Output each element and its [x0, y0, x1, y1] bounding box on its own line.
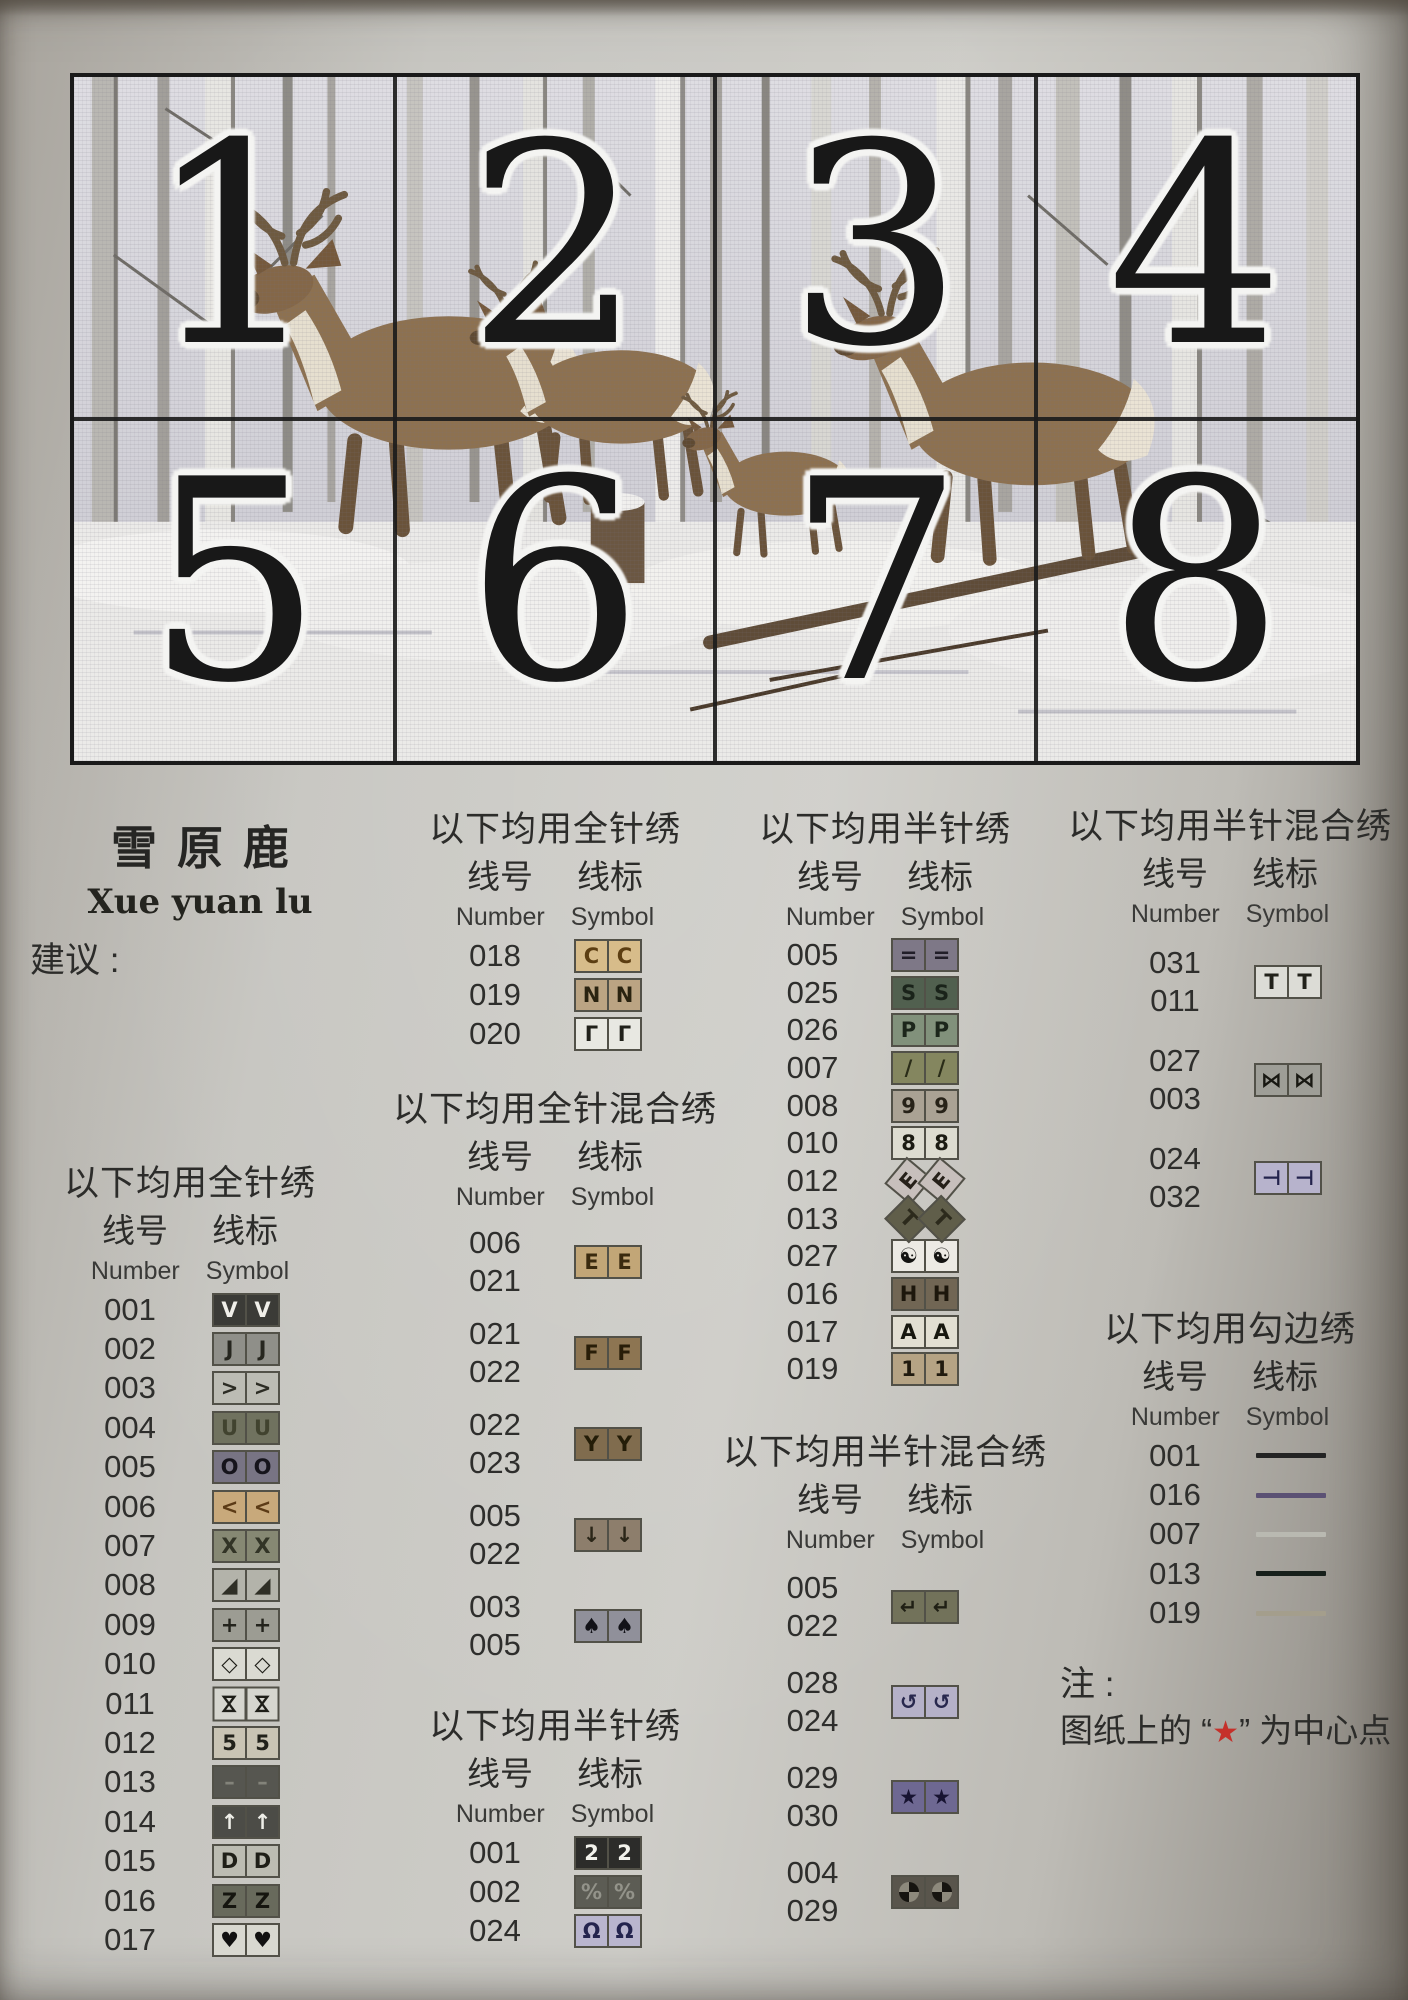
thread-number: 016 [70, 1883, 190, 1919]
column-headers-cn: 线号 线标 [40, 1206, 340, 1256]
note-block: 注 : 图纸上的 “★” 为中心点 [1060, 1662, 1400, 1756]
legend-pair-row: 031011 TT [1060, 933, 1400, 1031]
thread-number-label-cn: 线号 [467, 1132, 533, 1182]
symbol-swatch: FF [574, 1336, 642, 1370]
thread-number: 016 [1100, 1477, 1250, 1513]
thread-symbol-label-cn: 线标 [212, 1206, 278, 1256]
section-full-mix-stitch: 以下均用全针混合绣 线号 线标 Number Symbol 006021 EE … [390, 1088, 720, 1671]
symbol-cell: V [245, 1293, 280, 1327]
thread-number: 008 [70, 1567, 190, 1603]
column-headers-cn: 线号 线标 [720, 1475, 1050, 1525]
legend-row: 011 ⋈⋈ [40, 1684, 340, 1723]
symbol-cell: 2 [607, 1836, 642, 1870]
symbol-swatch: PP [891, 1013, 959, 1047]
thread-number: 022 [430, 1535, 560, 1573]
pattern-title-chinese: 雪原鹿 [60, 820, 340, 876]
thread-number-pair: 005022 [430, 1497, 560, 1573]
thread-symbol-label-en: Symbol [1246, 1402, 1329, 1432]
symbol-swatch: AA [891, 1315, 959, 1349]
thread-number: 012 [70, 1725, 190, 1761]
symbol-swatch: >> [212, 1371, 280, 1405]
column-headers-cn: 线号 线标 [390, 1749, 720, 1799]
thread-number-label-en: Number [456, 1799, 545, 1829]
symbol-cell: ☯ [891, 1239, 926, 1273]
thread-number: 022 [430, 1406, 560, 1444]
legend-row: 027 ☯☯ [720, 1238, 1050, 1276]
note-text-before: 图纸上的 “ [1060, 1712, 1212, 1749]
thread-number: 005 [750, 937, 875, 973]
symbol-cell: ◢ [245, 1568, 280, 1602]
symbol-swatch: 55 [212, 1726, 280, 1760]
symbol-swatch: ⋈⋈ [1254, 1063, 1322, 1097]
symbol-cell: D [212, 1844, 247, 1878]
legend-row: 009 ++ [40, 1605, 340, 1644]
symbol-cell: / [924, 1051, 959, 1085]
section-half-stitch-col3: 以下均用半针绣 线号 线标 Number Symbol 005 == 025 S… [720, 808, 1050, 1388]
symbol-cell: H [891, 1277, 926, 1311]
column-headers-cn: 线号 线标 [1060, 849, 1400, 899]
section-full-stitch-col2: 以下均用全针绣 线号 线标 Number Symbol 018 CC 019 N… [390, 808, 720, 1054]
thread-number: 021 [430, 1262, 560, 1300]
column-headers-en: Number Symbol [390, 1799, 720, 1829]
symbol-cell: ◢ [212, 1568, 247, 1602]
thread-number-label-en: Number [91, 1256, 180, 1286]
legend-row: 001 [1060, 1436, 1400, 1475]
thread-number: 011 [1100, 982, 1250, 1020]
legend-pair-row: 022023 YY [390, 1398, 720, 1489]
symbol-cell: ★ [891, 1780, 926, 1814]
legend-row: 005 == [720, 936, 1050, 974]
symbol-swatch: HH [891, 1277, 959, 1311]
thread-number: 007 [1100, 1516, 1250, 1552]
thread-number: 019 [430, 977, 560, 1013]
section-title: 以下均用半针混合绣 [720, 1431, 1050, 1475]
thread-number: 032 [1100, 1178, 1250, 1216]
thread-number-label-cn: 线号 [1142, 849, 1208, 899]
symbol-cell: C [574, 939, 609, 973]
legend-pair-row: 005022 ↵↵ [720, 1559, 1050, 1654]
symbol-cell: 8 [891, 1126, 926, 1160]
thread-number-label-cn: 线号 [467, 852, 533, 902]
symbol-swatch: ΩΩ [574, 1914, 642, 1948]
thread-number: 005 [70, 1449, 190, 1485]
symbol-cell: ↓ [574, 1518, 609, 1552]
section-backstitch: 以下均用勾边绣 线号 线标 Number Symbol 001 016 [1060, 1308, 1400, 1633]
symbol-cell: ⋈ [246, 1686, 280, 1721]
thread-number-label-cn: 线号 [797, 852, 863, 902]
symbol-cell: ↺ [924, 1685, 959, 1719]
legend-pair-row: 028024 ↺↺ [720, 1654, 1050, 1749]
symbol-swatch: YY [574, 1427, 642, 1461]
legend-row: 008 99 [720, 1087, 1050, 1125]
thread-number-label-cn: 线号 [797, 1475, 863, 1525]
note-text-after: ” 为中心点 [1239, 1712, 1391, 1749]
symbol-swatch: // [891, 1051, 959, 1085]
legend-pair-row: 024032 ⊣⊣ [1060, 1129, 1400, 1227]
column-headers-en: Number Symbol [720, 902, 1050, 932]
thread-number: 002 [70, 1331, 190, 1367]
symbol-swatch: OO [212, 1450, 280, 1484]
symbol-cell: 9 [924, 1089, 959, 1123]
outline-line-swatch [1256, 1571, 1326, 1576]
legend-row: 024 ΩΩ [390, 1912, 720, 1951]
symbol-cell: O [212, 1450, 247, 1484]
symbol-swatch: SS [891, 976, 959, 1010]
thread-number: 025 [750, 975, 875, 1011]
symbol-cell: ♥ [245, 1923, 280, 1957]
symbol-swatch: TT [1254, 965, 1322, 999]
thread-number: 017 [70, 1922, 190, 1958]
section-half-stitch-col2: 以下均用半针绣 线号 线标 Number Symbol 001 22 002 %… [390, 1705, 720, 1951]
symbol-swatch: CC [574, 939, 642, 973]
symbol-cell: Z [245, 1884, 280, 1918]
thread-number: 013 [750, 1201, 875, 1237]
column-headers-en: Number Symbol [40, 1256, 340, 1286]
symbol-cell: A [891, 1315, 926, 1349]
outline-line-swatch [1256, 1453, 1326, 1458]
symbol-cell: ↑ [245, 1805, 280, 1839]
symbol-swatch: TT [891, 1202, 959, 1236]
thread-number: 015 [70, 1843, 190, 1879]
thread-number: 001 [1100, 1438, 1250, 1474]
symbol-swatch: ↓↓ [574, 1518, 642, 1552]
section-half-mix-col4: 以下均用半针混合绣 线号 线标 Number Symbol 031011 TT … [1060, 805, 1400, 1227]
thread-number: 008 [750, 1088, 875, 1124]
thread-number: 017 [750, 1314, 875, 1350]
thread-number-pair: 029030 [750, 1759, 875, 1835]
thread-number: 007 [70, 1528, 190, 1564]
symbol-swatch: ♠♠ [574, 1609, 642, 1643]
thread-number-pair: 021022 [430, 1315, 560, 1391]
section-title: 以下均用全针混合绣 [390, 1088, 720, 1132]
thread-number-label-en: Number [456, 902, 545, 932]
column-headers-cn: 线号 线标 [390, 852, 720, 902]
symbol-cell: O [245, 1450, 280, 1484]
legend-row: 002 JJ [40, 1329, 340, 1368]
thread-number: 019 [750, 1351, 875, 1387]
symbol-cell: ↺ [891, 1685, 926, 1719]
symbol-cell: T [1287, 965, 1322, 999]
thread-number: 027 [1100, 1042, 1250, 1080]
symbol-swatch: ◢◢ [212, 1568, 280, 1602]
thread-number: 028 [750, 1664, 875, 1702]
symbol-cell: ⊣ [1254, 1161, 1289, 1195]
center-point-star-icon: ★ [1212, 1716, 1239, 1749]
legend-rows: 001 22 002 %% 024 ΩΩ [390, 1833, 720, 1951]
symbol-swatch: ΓΓ [574, 1017, 642, 1051]
thread-number: 014 [70, 1804, 190, 1840]
symbol-cell: < [245, 1490, 280, 1524]
symbol-cell: ⋈ [1254, 1063, 1289, 1097]
legend-row: 007 // [720, 1049, 1050, 1087]
outline-line-swatch [1256, 1611, 1326, 1616]
section-title: 以下均用全针绣 [390, 808, 720, 852]
legend-row: 012 55 [40, 1723, 340, 1762]
symbol-cell: ♠ [607, 1609, 642, 1643]
thread-number: 023 [430, 1444, 560, 1482]
thread-number-pair: 024032 [1100, 1140, 1250, 1216]
symbol-cell: Z [212, 1884, 247, 1918]
symbol-cell: = [924, 938, 959, 972]
legend-row: 013 –– [40, 1763, 340, 1802]
symbol-cell: ◇ [245, 1647, 280, 1681]
column-headers-cn: 线号 线标 [720, 852, 1050, 902]
thread-number: 004 [750, 1854, 875, 1892]
thread-symbol-label-en: Symbol [206, 1256, 289, 1286]
thread-number-pair: 004029 [750, 1854, 875, 1930]
legend-row: 008 ◢◢ [40, 1566, 340, 1605]
legend-row: 017 AA [720, 1313, 1050, 1351]
symbol-cell: + [245, 1608, 280, 1642]
thread-number: 001 [430, 1835, 560, 1871]
symbol-cell: V [212, 1293, 247, 1327]
symbol-swatch: DD [212, 1844, 280, 1878]
thread-number: 024 [1100, 1140, 1250, 1178]
symbol-cell: S [924, 976, 959, 1010]
column-headers-en: Number Symbol [1060, 899, 1400, 929]
legend-row: 003 >> [40, 1369, 340, 1408]
symbol-cell: > [245, 1371, 280, 1405]
title-block: 雪原鹿 Xue yuan lu [60, 820, 340, 924]
thread-symbol-label-en: Symbol [571, 1799, 654, 1829]
symbol-cell: = [891, 938, 926, 972]
thread-number: 004 [70, 1410, 190, 1446]
thread-number: 013 [70, 1764, 190, 1800]
thread-number-label-en: Number [786, 902, 875, 932]
legend-row: 017 ♥♥ [40, 1920, 340, 1959]
thread-number: 021 [430, 1315, 560, 1353]
symbol-swatch: << [212, 1490, 280, 1524]
thread-number: 019 [1100, 1595, 1250, 1631]
symbol-cell: P [891, 1013, 926, 1047]
thread-symbol-label-cn: 线标 [907, 1475, 973, 1525]
column-headers-en: Number Symbol [1060, 1402, 1400, 1432]
symbol-cell: 2 [574, 1836, 609, 1870]
thread-number-label-en: Number [1131, 1402, 1220, 1432]
thread-number-label-en: Number [456, 1182, 545, 1212]
symbol-cell: ★ [924, 1780, 959, 1814]
symbol-cell: ◇ [212, 1647, 247, 1681]
symbol-cell: T [1254, 965, 1289, 999]
photographed-page: 1 2 3 4 5 6 7 8 雪原鹿 Xue y [0, 0, 1408, 2000]
thread-number-pair: 022023 [430, 1406, 560, 1482]
thread-number-pair: 005022 [750, 1569, 875, 1645]
column-headers-cn: 线号 线标 [1060, 1352, 1400, 1402]
legend-row: 016 ZZ [40, 1881, 340, 1920]
symbol-cell: ↑ [212, 1805, 247, 1839]
thread-number: 010 [750, 1125, 875, 1161]
symbol-cell: 9 [891, 1089, 926, 1123]
thread-symbol-label-en: Symbol [901, 902, 984, 932]
symbol-cell: ☯ [924, 1239, 959, 1273]
thread-number: 024 [430, 1913, 560, 1949]
legend-row: 020 ΓΓ [390, 1015, 720, 1054]
symbol-swatch: 11 [891, 1352, 959, 1386]
legend-row: 012 EE [720, 1162, 1050, 1200]
legend-pair-row: 029030 ★★ [720, 1749, 1050, 1844]
legend-pair-row: 006021 EE [390, 1216, 720, 1307]
symbol-cell: ♥ [212, 1923, 247, 1957]
thread-number: 020 [430, 1016, 560, 1052]
thread-number: 005 [430, 1626, 560, 1664]
symbol-swatch: EE [891, 1164, 959, 1198]
symbol-cell [924, 1875, 959, 1909]
thread-number: 007 [750, 1050, 875, 1086]
symbol-cell: ♠ [574, 1609, 609, 1643]
thread-number: 027 [750, 1238, 875, 1274]
thread-number: 003 [1100, 1080, 1250, 1118]
legend-row: 014 ↑↑ [40, 1802, 340, 1841]
symbol-cell: U [245, 1411, 280, 1445]
symbol-cell: C [607, 939, 642, 973]
column-headers-en: Number Symbol [720, 1525, 1050, 1555]
thread-number: 030 [750, 1797, 875, 1835]
symbol-cell: A [924, 1315, 959, 1349]
symbol-swatch: ++ [212, 1608, 280, 1642]
symbol-cell [891, 1875, 926, 1909]
legend-row: 019 NN [390, 975, 720, 1014]
symbol-cell: Γ [607, 1017, 642, 1051]
thread-number-pair: 027003 [1100, 1042, 1250, 1118]
legend-row: 015 DD [40, 1841, 340, 1880]
symbol-cell: Γ [574, 1017, 609, 1051]
symbol-swatch: EE [574, 1245, 642, 1279]
legend-pair-rows: 031011 TT 027003 ⋈⋈ 024032 ⊣⊣ [1060, 933, 1400, 1227]
thread-number: 005 [430, 1497, 560, 1535]
symbol-cell: Ω [574, 1914, 609, 1948]
thread-number: 001 [70, 1292, 190, 1328]
symbol-cell: – [245, 1765, 280, 1799]
legend-row: 010 88 [720, 1124, 1050, 1162]
thread-number-pair: 028024 [750, 1664, 875, 1740]
symbol-cell: ⋈ [213, 1686, 247, 1721]
symbol-swatch: –– [212, 1765, 280, 1799]
symbol-cell: < [212, 1490, 247, 1524]
thread-number: 003 [430, 1588, 560, 1626]
note-text: 图纸上的 “★” 为中心点 [1060, 1708, 1400, 1756]
symbol-swatch: ☯☯ [891, 1239, 959, 1273]
thread-number: 006 [70, 1489, 190, 1525]
symbol-cell: ↓ [607, 1518, 642, 1552]
symbol-cell: % [607, 1875, 642, 1909]
symbol-swatch: JJ [212, 1332, 280, 1366]
section-title: 以下均用半针绣 [720, 808, 1050, 852]
column-headers-en: Number Symbol [390, 902, 720, 932]
legend-rows: 001 VV 002 JJ 003 >> 004 UU 005 OO [40, 1290, 340, 1960]
legend-pair-row: 005022 ↓↓ [390, 1489, 720, 1580]
legend-row: 002 %% [390, 1872, 720, 1911]
thread-symbol-label-cn: 线标 [1252, 1352, 1318, 1402]
symbol-cell: ↵ [924, 1590, 959, 1624]
symbol-swatch: ★★ [891, 1780, 959, 1814]
symbol-cell: – [212, 1765, 247, 1799]
symbol-swatch: ⋈⋈ [212, 1687, 280, 1721]
symbol-cell: % [574, 1875, 609, 1909]
thread-symbol-label-cn: 线标 [577, 1749, 643, 1799]
thread-number-pair: 003005 [430, 1588, 560, 1664]
thread-number: 024 [750, 1702, 875, 1740]
thread-symbol-label-cn: 线标 [577, 852, 643, 902]
legend-row: 016 [1060, 1475, 1400, 1514]
legend-pair-rows: 006021 EE 021022 FF 022023 YY 005022 ↓↓ … [390, 1216, 720, 1671]
thread-number-pair: 031011 [1100, 944, 1250, 1020]
symbol-cell: 5 [212, 1726, 247, 1760]
symbol-cell: S [891, 976, 926, 1010]
symbol-cell: N [574, 978, 609, 1012]
thread-number-label-cn: 线号 [1142, 1352, 1208, 1402]
symbol-cell: / [891, 1051, 926, 1085]
symbol-swatch: ⊣⊣ [1254, 1161, 1322, 1195]
symbol-cell: T [917, 1194, 966, 1243]
section-title: 以下均用半针混合绣 [1060, 805, 1400, 849]
thread-number: 018 [430, 938, 560, 974]
legend-row: 026 PP [720, 1011, 1050, 1049]
symbol-cell: U [212, 1411, 247, 1445]
suggestions-heading: 建议 : [30, 938, 390, 984]
symbol-cell: D [245, 1844, 280, 1878]
legend-pair-rows: 005022 ↵↵ 028024 ↺↺ 029030 ★★ 004029 [720, 1559, 1050, 1939]
symbol-cell: 5 [245, 1726, 280, 1760]
symbol-swatch: 22 [574, 1836, 642, 1870]
symbol-swatch: NN [574, 978, 642, 1012]
thread-symbol-label-en: Symbol [571, 902, 654, 932]
symbol-cell: J [245, 1332, 280, 1366]
thread-symbol-label-cn: 线标 [577, 1132, 643, 1182]
thread-number-pair: 006021 [430, 1224, 560, 1300]
legend-row: 001 22 [390, 1833, 720, 1872]
symbol-cell: + [212, 1608, 247, 1642]
symbol-swatch: 88 [891, 1126, 959, 1160]
thread-number-label-en: Number [786, 1525, 875, 1555]
thread-number: 006 [430, 1224, 560, 1262]
symbol-cell: N [607, 978, 642, 1012]
legend-rows: 001 016 007 013 019 [1060, 1436, 1400, 1633]
symbol-cell: ↵ [891, 1590, 926, 1624]
thread-number: 003 [70, 1370, 190, 1406]
symbol-swatch: UU [212, 1411, 280, 1445]
legend-row: 013 [1060, 1554, 1400, 1593]
thread-number: 029 [750, 1892, 875, 1930]
symbol-cell: ⊣ [1287, 1161, 1322, 1195]
section-title: 以下均用全针绣 [40, 1162, 340, 1206]
symbol-swatch: ↵↵ [891, 1590, 959, 1624]
thread-symbol-label-en: Symbol [901, 1525, 984, 1555]
symbol-swatch: VV [212, 1293, 280, 1327]
legend-row: 007 XX [40, 1526, 340, 1565]
thread-number-label-cn: 线号 [102, 1206, 168, 1256]
thread-number: 002 [430, 1874, 560, 1910]
symbol-swatch: 99 [891, 1089, 959, 1123]
section-half-mix-col3: 以下均用半针混合绣 线号 线标 Number Symbol 005022 ↵↵ … [720, 1431, 1050, 1939]
section-title: 以下均用勾边绣 [1060, 1308, 1400, 1352]
symbol-cell: Y [574, 1427, 609, 1461]
thread-number: 031 [1100, 944, 1250, 982]
thread-symbol-label-cn: 线标 [907, 852, 973, 902]
symbol-swatch: ZZ [212, 1884, 280, 1918]
thread-number: 022 [430, 1353, 560, 1391]
symbol-cell: 1 [924, 1352, 959, 1386]
legend-area: 雪原鹿 Xue yuan lu 建议 : 以下均用全针绣 线号 线标 Numbe… [0, 0, 1408, 2000]
legend-row: 013 TT [720, 1200, 1050, 1238]
legend-row: 001 VV [40, 1290, 340, 1329]
legend-pair-row: 003005 ♠♠ [390, 1580, 720, 1671]
symbol-cell: E [574, 1245, 609, 1279]
thread-number: 029 [750, 1759, 875, 1797]
legend-pair-row: 027003 ⋈⋈ [1060, 1031, 1400, 1129]
symbol-swatch: == [891, 938, 959, 972]
note-heading: 注 : [1060, 1662, 1400, 1708]
thread-number: 011 [70, 1686, 190, 1722]
